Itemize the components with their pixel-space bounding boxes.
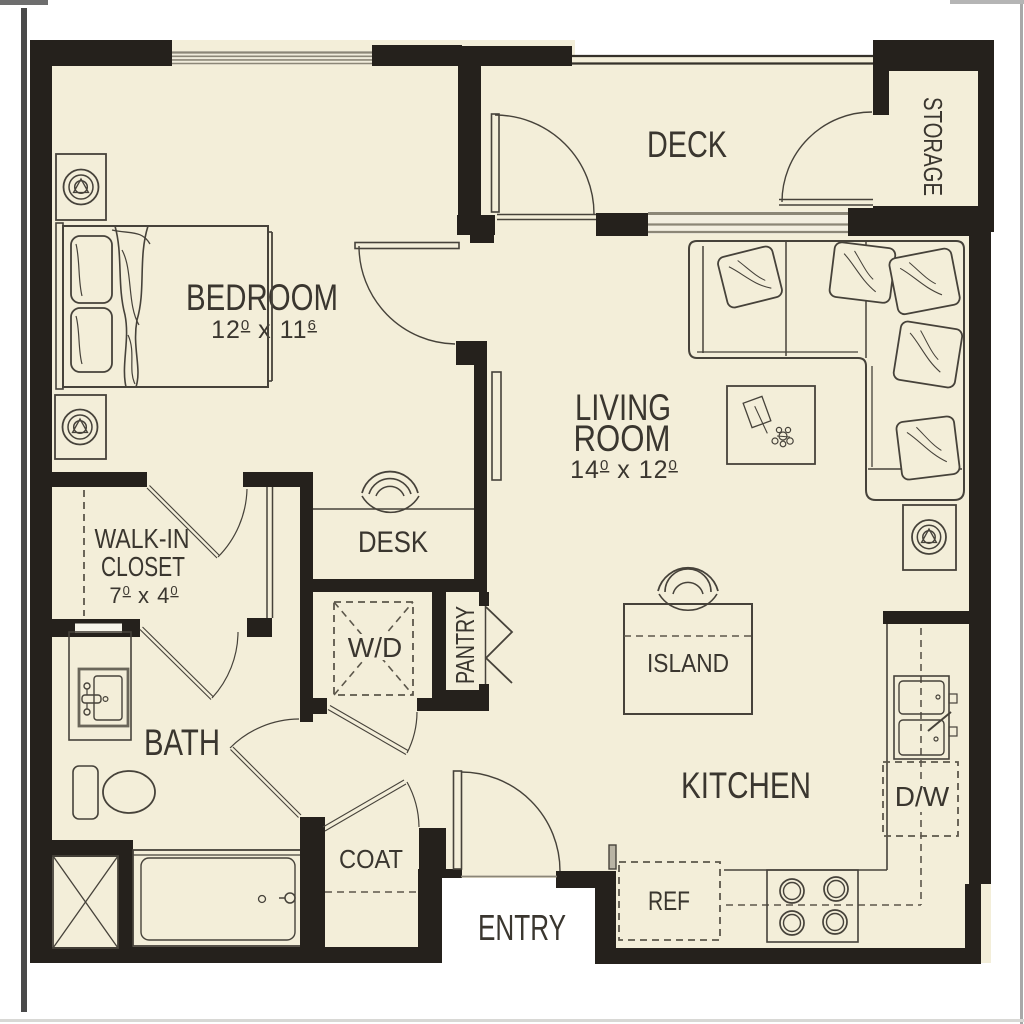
svg-text:ROOM: ROOM (574, 418, 671, 459)
svg-text:DECK: DECK (647, 124, 727, 165)
svg-text:DESK: DESK (358, 526, 428, 559)
svg-text:140 x 120: 140 x 120 (570, 456, 678, 484)
svg-text:COAT: COAT (339, 844, 403, 874)
svg-text:WALK-IN: WALK-IN (95, 523, 190, 554)
svg-text:STORAGE: STORAGE (918, 97, 948, 196)
svg-text:ISLAND: ISLAND (647, 648, 729, 678)
svg-text:ENTRY: ENTRY (478, 907, 566, 948)
svg-text:BEDROOM: BEDROOM (186, 277, 338, 318)
svg-text:W/D: W/D (348, 632, 402, 663)
svg-text:KITCHEN: KITCHEN (681, 765, 811, 806)
svg-text:D/W: D/W (895, 781, 950, 812)
svg-text:120 x 116: 120 x 116 (211, 316, 317, 344)
svg-text:BATH: BATH (144, 722, 220, 763)
svg-text:CLOSET: CLOSET (101, 551, 185, 582)
svg-text:REF: REF (648, 886, 690, 916)
svg-text:70 x 40: 70 x 40 (109, 583, 178, 608)
svg-text:PANTRY: PANTRY (450, 606, 480, 684)
